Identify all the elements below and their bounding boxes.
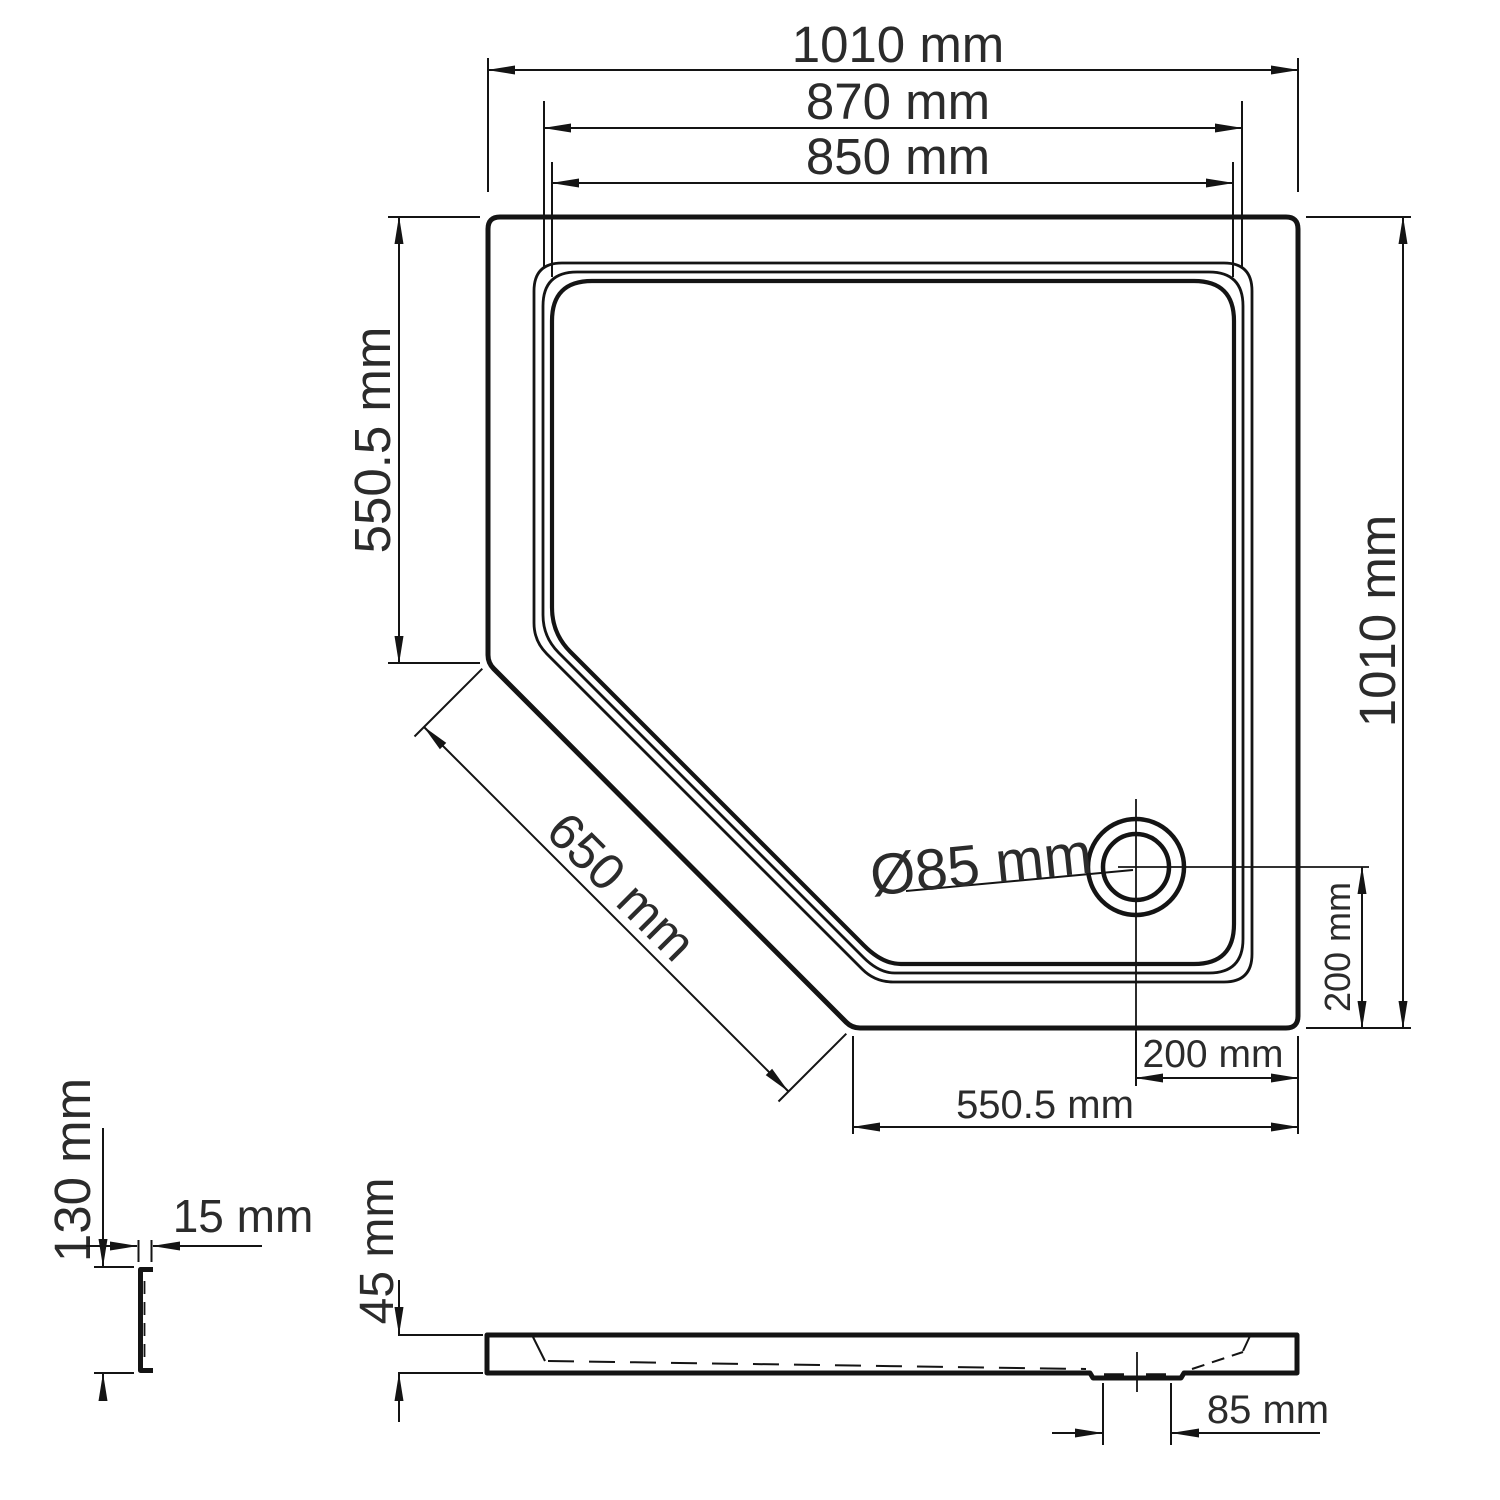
dim-label: 1010 mm (1349, 515, 1406, 728)
hidden-wall-line-right (1192, 1352, 1243, 1369)
dim-drain-boss: 85 mm (1052, 1383, 1329, 1445)
dim-label: 550.5 mm (956, 1083, 1134, 1127)
edge-detail: 130 mm 15 mm (44, 1078, 313, 1400)
dim-thickness: 45 mm (351, 1178, 483, 1422)
side-view: 45 mm 85 mm (351, 1178, 1329, 1445)
hidden-floor-line (548, 1361, 1086, 1369)
dim-label: 1010 mm (792, 16, 1005, 73)
top-view: 1010 mm 870 mm 850 mm 550.5 mm (344, 16, 1411, 1134)
dim-label: 200 mm (1143, 1033, 1284, 1076)
dim-label: 200 mm (1317, 882, 1358, 1012)
dim-drain-to-right: 200 mm (1136, 1032, 1298, 1134)
drain-diameter-text: Ø85 mm (867, 821, 1095, 909)
dim-flange-height: 130 mm (44, 1078, 134, 1400)
flange-profile (141, 1270, 154, 1371)
dim-inner-width: 850 mm (552, 128, 1233, 277)
dim-flange-width: 15 mm (86, 1190, 313, 1262)
technical-drawing: 1010 mm 870 mm 850 mm 550.5 mm (0, 0, 1500, 1500)
section-profile (487, 1335, 1297, 1378)
dim-label: 15 mm (173, 1190, 314, 1242)
dim-label: 870 mm (806, 73, 990, 130)
dim-label: 45 mm (351, 1178, 404, 1325)
dim-label: 85 mm (1207, 1388, 1329, 1432)
dim-chamfer: 650 mm (415, 669, 847, 1102)
dim-label: 130 mm (44, 1078, 101, 1262)
dim-label: 850 mm (806, 128, 990, 185)
inner-wall-edge-right (1243, 1336, 1250, 1351)
dim-label: 650 mm (536, 801, 707, 972)
extension-line (779, 1034, 847, 1102)
drain-diameter-label: Ø85 mm (867, 821, 1133, 909)
dim-left-edge: 550.5 mm (344, 217, 480, 663)
drawing-page: 1010 mm 870 mm 850 mm 550.5 mm (0, 0, 1500, 1500)
dim-drain-to-bottom: 200 mm (1317, 867, 1362, 1028)
inner-wall-edge-left (533, 1337, 545, 1361)
dim-label: 550.5 mm (344, 327, 401, 554)
